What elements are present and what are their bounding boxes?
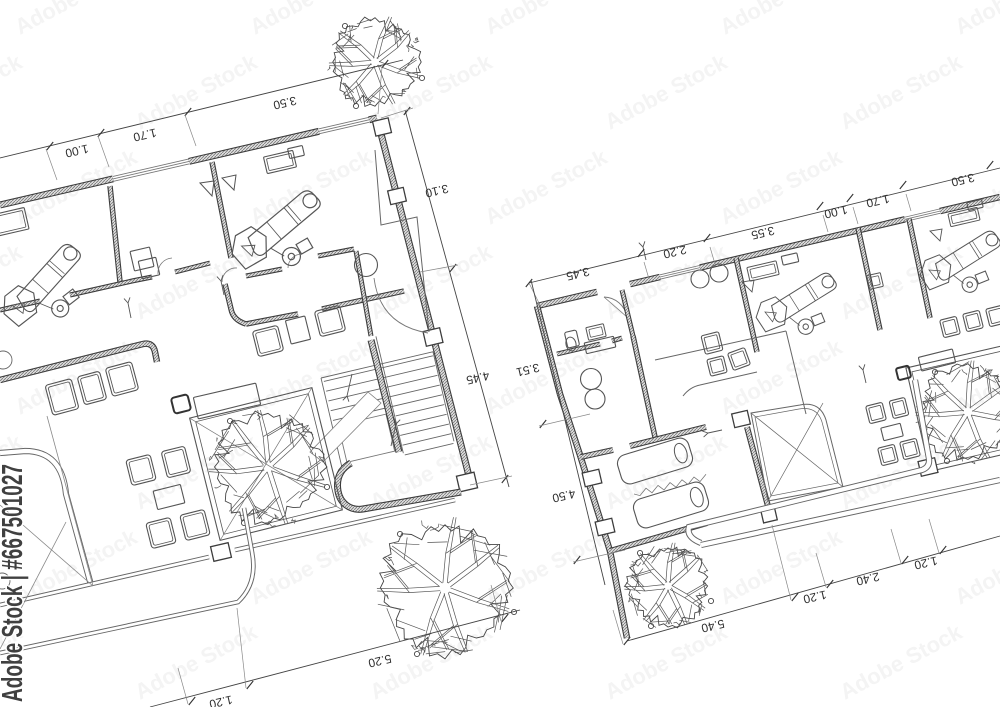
svg-text:Adobe Stock | #667501027: Adobe Stock | #667501027: [0, 464, 29, 702]
